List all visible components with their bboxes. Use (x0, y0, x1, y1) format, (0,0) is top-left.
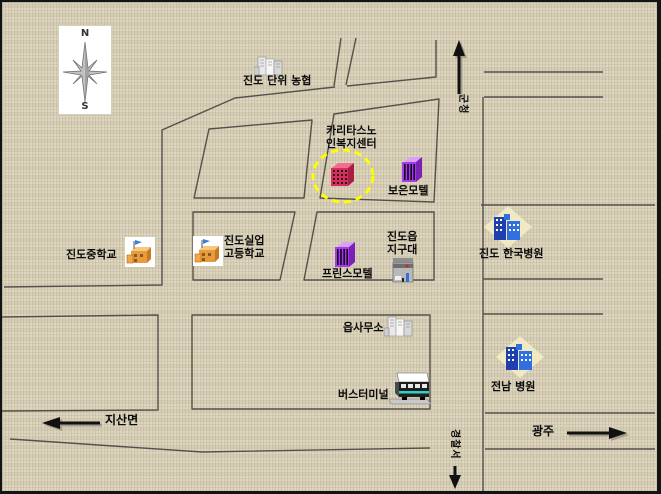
caritas-label-line1: 카리타스노 (326, 124, 377, 137)
caritas-label-line2: 인복지센터 (326, 137, 377, 150)
boeun-motel-building-icon (401, 156, 423, 184)
compass-south-label: S (59, 101, 111, 112)
bus-terminal-label: 버스터미널 (338, 388, 389, 401)
bus-terminal-icon (387, 371, 431, 406)
nonghyup-label: 진도 단위 농협 (243, 74, 311, 87)
jindo-area-map: N S (0, 0, 661, 494)
jigudae-label: 진도읍 지구대 (387, 230, 417, 256)
jeonnam-hospital-label: 전남 병원 (491, 380, 535, 393)
eup-office-buildings-icon (384, 315, 414, 337)
jisan-direction-label: 지산면 (105, 414, 138, 427)
prince-motel-building-icon (334, 241, 356, 269)
hankook-hospital-icon (484, 206, 532, 248)
gwangju-direction-label: 광주 (532, 425, 554, 438)
silup-school-label: 진도실업 고등학교 (224, 234, 264, 260)
nonghyup-buildings-icon (254, 55, 284, 76)
hankook-hospital-label: 진도 한국병원 (479, 247, 544, 260)
middle-school-label: 진도중학교 (66, 248, 117, 261)
police-box-icon (391, 256, 415, 284)
prince-motel-label: 프린스모텔 (322, 267, 373, 280)
middle-school-icon (125, 237, 155, 267)
boeun-motel-label: 보은모텔 (388, 184, 428, 197)
silup-school-icon (193, 236, 223, 266)
compass-north-label: N (59, 28, 111, 39)
compass-rose: N S (58, 25, 112, 115)
jigudae-label-line1: 진도읍 (387, 230, 417, 243)
caritas-label: 카리타스노 인복지센터 (326, 124, 377, 150)
jigudae-label-line2: 지구대 (387, 243, 417, 256)
police-direction-label: 경찰서 (448, 429, 461, 460)
caritas-building-icon (330, 161, 356, 189)
silup-label-line2: 고등학교 (224, 247, 264, 260)
eup-office-label: 읍사무소 (343, 321, 383, 334)
silup-label-line1: 진도실업 (224, 234, 264, 247)
gun-office-direction-label: 군청 (456, 94, 469, 114)
jeonnam-hospital-icon (496, 336, 544, 378)
